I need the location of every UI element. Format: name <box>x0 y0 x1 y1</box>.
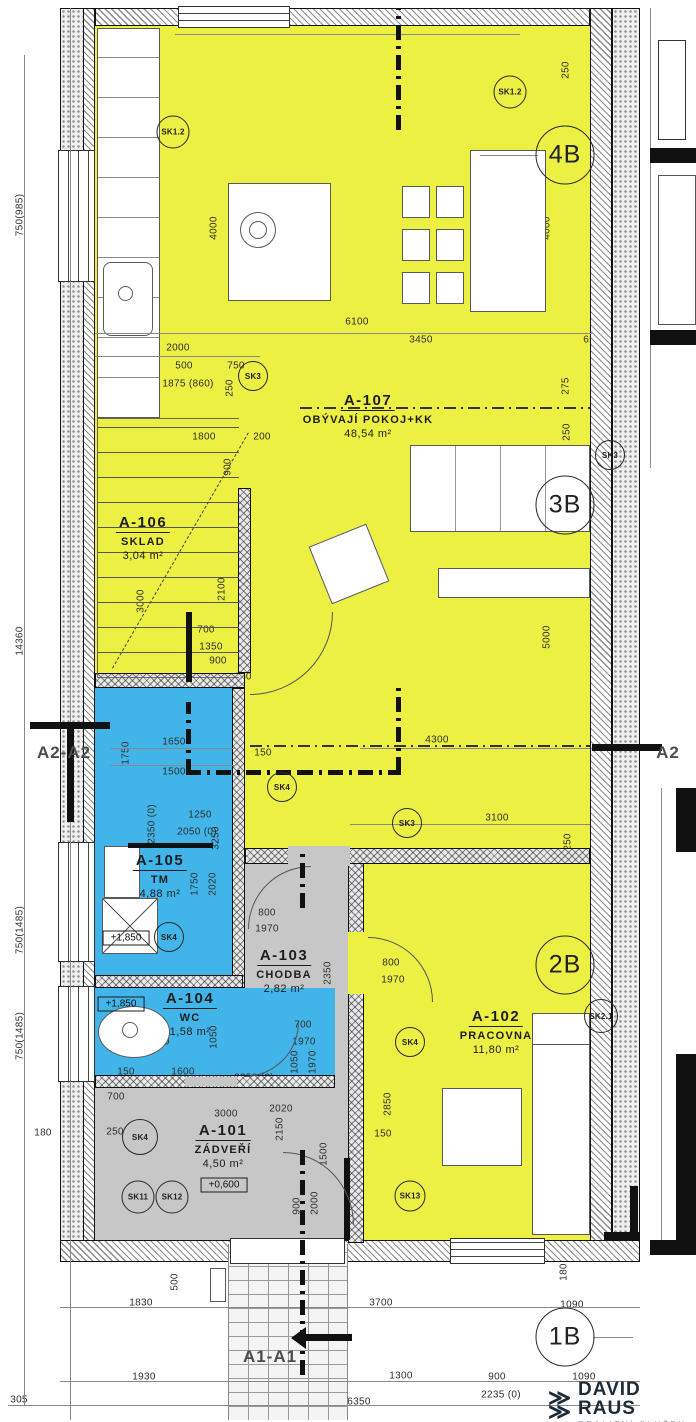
unit-marker-4b: 4B <box>536 126 595 185</box>
room-name: ZÁDVEŘÍ <box>195 1144 252 1156</box>
section-arrow-a2-stem <box>67 722 74 822</box>
door-opening-chodba <box>288 846 350 866</box>
room-label-a-102: A-102PRACOVNA11,80 m² <box>460 1008 533 1056</box>
neighbor-wall-line <box>661 788 662 1240</box>
daybed <box>532 1013 590 1235</box>
dimension-label: 180 <box>34 1128 52 1139</box>
section-arrow-a1-head <box>291 1327 306 1349</box>
room-name: OBÝVAJÍ POKOJ+KK <box>303 414 434 426</box>
marker-sk4: SK4 <box>267 772 297 802</box>
room-area: 4,50 m² <box>195 1158 252 1170</box>
door-opening-pracovna <box>348 932 364 994</box>
pipe-line-v <box>186 702 191 774</box>
room-area: 11,80 m² <box>460 1044 533 1056</box>
dimension-label: 2020 <box>269 1104 292 1115</box>
dimension-label: 2020 <box>208 872 219 895</box>
dim-line <box>360 748 590 749</box>
room-area: 3,04 m² <box>116 550 170 562</box>
dimension-label: 1750 <box>121 741 132 764</box>
section-arrow-a2-right <box>592 744 662 751</box>
section-line-a1-chodba <box>300 848 305 908</box>
room-label-a-105: A-105TM4,88 m² <box>133 852 187 900</box>
platform-edge <box>128 843 213 848</box>
wall-right-inner <box>590 8 612 1262</box>
dimension-label: 250 <box>561 61 572 79</box>
corner-column <box>630 1186 638 1240</box>
room-label-a-106: A-106SKLAD3,04 m² <box>116 514 170 562</box>
dimension-label: 3450 <box>409 335 432 346</box>
dimension-label: 275 <box>561 377 572 395</box>
dining-table <box>470 150 546 312</box>
marker-sk3: SK3 <box>595 440 625 470</box>
dimension-label: 2850 <box>383 1092 394 1115</box>
wall-right-insulation <box>612 8 640 1262</box>
porch-step <box>210 1268 226 1302</box>
room-name: PRACOVNA <box>460 1030 533 1042</box>
neighbor-wall <box>676 1054 696 1242</box>
neighbor-room <box>658 175 696 325</box>
room-code: A-101 <box>196 1122 250 1141</box>
dimension-label: 1650 <box>162 737 185 748</box>
brand-chevron-icon: ≫ ≫ <box>548 1391 571 1418</box>
section-arrow-a1-bar <box>306 1334 352 1341</box>
dim-line <box>24 55 25 1405</box>
neighbor-wall <box>650 148 696 163</box>
storage-door-leaf <box>186 612 192 682</box>
window-left-mid <box>58 842 95 962</box>
dimension-label: 1050 <box>290 1050 301 1073</box>
dimension-label: 1875 (860) <box>162 379 213 390</box>
dimension-label: 2235 (0) <box>481 1390 521 1401</box>
dimension-label: 250 <box>562 423 573 441</box>
room-name: TM <box>133 874 187 886</box>
dining-chair <box>402 229 430 261</box>
dimension-label: 3100 <box>485 813 508 824</box>
dimension-label: 5000 <box>542 625 553 648</box>
section-mark-label: A2 <box>656 743 680 763</box>
marker-sk1.2: SK1.2 <box>157 116 190 149</box>
dimension-label: 1500 <box>162 767 185 778</box>
dining-chair <box>402 272 430 304</box>
neighbor-wall <box>676 788 696 852</box>
room-name: WC <box>163 1012 217 1024</box>
centerline-mid <box>250 745 590 747</box>
dim-line <box>60 1307 640 1308</box>
desk <box>442 1088 522 1166</box>
room-code: A-103 <box>257 947 311 966</box>
dimension-label: 3000 <box>214 1109 237 1120</box>
dimension-label: 1750 <box>190 872 201 895</box>
wall-bottom <box>60 1240 640 1262</box>
room-label-a-103: A-103CHODBA2,82 m² <box>256 947 311 995</box>
entry-door-opening <box>230 1238 345 1264</box>
unit-marker-1b: 1B <box>536 1308 595 1367</box>
dimension-label: 150 <box>254 748 272 759</box>
neighbor-wall <box>650 1240 696 1255</box>
dimension-label: 305 <box>10 1395 28 1406</box>
dim-line <box>175 34 520 35</box>
window-top <box>178 6 290 28</box>
room-area: 1,58 m² <box>163 1026 217 1038</box>
cooktop-inner <box>249 221 267 239</box>
room-area: 2,82 m² <box>256 983 311 995</box>
room-code: A-102 <box>469 1008 523 1027</box>
window-left-low <box>58 986 95 1082</box>
dimension-label: 250 <box>225 379 236 397</box>
dim-line <box>70 8 71 1420</box>
dim-line <box>350 824 590 825</box>
dim-line <box>8 1405 640 1406</box>
neighbor-window <box>658 40 686 140</box>
room-label-a-104: A-104WC1,58 m² <box>163 990 217 1038</box>
kitchen-island <box>228 183 331 301</box>
wall-chodba-east <box>348 863 364 1243</box>
dimension-label: 2350 (0) <box>147 804 158 844</box>
dimension-label: 4000 <box>209 216 220 239</box>
elevation-mark: +1,850 <box>103 931 150 946</box>
neighbor-wall-line <box>650 8 651 468</box>
dimension-label: 150 <box>374 1129 392 1140</box>
door-opening-wc <box>185 1077 237 1086</box>
elevation-mark: +1,850 <box>98 997 145 1012</box>
dining-chair <box>436 272 464 304</box>
marker-sk3: SK3 <box>392 808 422 838</box>
wall-a105-east <box>232 688 245 988</box>
room-name: CHODBA <box>256 969 311 981</box>
window-left-top <box>58 150 95 282</box>
brand-name: DAVID RAUS <box>578 1380 696 1418</box>
dimension-label: 700 <box>107 1092 125 1103</box>
wall-top <box>95 8 590 26</box>
wall-wc-north <box>95 975 243 988</box>
washbasin-drain <box>122 1022 138 1038</box>
marker-sk4: SK4 <box>395 1027 425 1057</box>
brand-logo: ≫ ≫ DAVID RAUS REALITNÍ SLUŽBY <box>548 1380 696 1422</box>
marker-sk11: SK11 <box>122 1181 155 1214</box>
room-area: 48,54 m² <box>303 428 434 440</box>
dim-line <box>110 765 235 766</box>
paver-walkway <box>228 1244 348 1420</box>
dimension-label: 2150 <box>275 1117 286 1140</box>
marker-sk1.2: SK1.2 <box>494 76 527 109</box>
marker-sk2.1: SK2.1 <box>584 999 618 1033</box>
room-code: A-107 <box>341 392 395 411</box>
dining-chair <box>402 186 430 218</box>
brand-text: DAVID RAUS REALITNÍ SLUŽBY <box>578 1380 696 1422</box>
dining-chair <box>436 186 464 218</box>
room-code: A-105 <box>133 852 187 871</box>
kitchen-faucet <box>118 286 133 301</box>
room-code: A-106 <box>116 514 170 533</box>
room-label-a-107: A-107OBÝVAJÍ POKOJ+KK48,54 m² <box>303 392 434 440</box>
dimension-label: 180 <box>559 1263 570 1281</box>
marker-sk4: SK4 <box>122 1119 158 1155</box>
dim-line <box>95 333 592 334</box>
dimension-label: 2000 <box>166 343 189 354</box>
elevation-mark: +0,600 <box>201 1178 248 1193</box>
window-bottom-pracovna <box>450 1238 545 1264</box>
dim-line <box>95 356 260 357</box>
room-name: SKLAD <box>116 536 170 548</box>
leader-line <box>593 1337 633 1338</box>
marker-sk13: SK13 <box>395 1181 426 1212</box>
neighbor-wall <box>650 330 696 345</box>
dimension-label: 4300 <box>425 735 448 746</box>
dimension-label: 1300 <box>389 1371 412 1382</box>
section-line-a1-top <box>396 8 401 130</box>
dimension-label: 1970 <box>308 1050 319 1073</box>
dimension-label: 2350 <box>323 961 334 984</box>
sideboard <box>438 568 590 598</box>
room-code: A-104 <box>163 990 217 1009</box>
chevron-glyph: ≫ <box>548 1405 571 1419</box>
floor-plan: ≫ ≫ DAVID RAUS REALITNÍ SLUŽBY 2501400 (… <box>0 0 696 1422</box>
dimension-label: 1250 <box>188 810 211 821</box>
section-mark-label: A1-A1 <box>243 1347 297 1367</box>
room-label-a-101: A-101ZÁDVEŘÍ4,50 m² <box>195 1122 252 1170</box>
dimension-label: 500 <box>170 1273 181 1291</box>
section-mark-label: A2-A2 <box>37 743 91 763</box>
dimension-label: 200 <box>253 432 271 443</box>
unit-marker-3b: 3B <box>536 476 595 535</box>
kitchen-counter <box>97 28 160 418</box>
dimension-label: 500 <box>175 361 193 372</box>
marker-sk4: SK4 <box>154 922 184 952</box>
dim-line <box>110 748 235 749</box>
washing-machine <box>102 898 158 954</box>
leader-line <box>480 155 538 156</box>
marker-sk3: SK3 <box>238 361 268 391</box>
dining-chair <box>436 229 464 261</box>
marker-sk12: SK12 <box>156 1181 189 1214</box>
dimension-label: 6100 <box>345 317 368 328</box>
unit-marker-2b: 2B <box>536 936 595 995</box>
section-line-a1-mid <box>396 688 401 772</box>
section-line-a1-jog <box>298 770 401 775</box>
room-area: 4,88 m² <box>133 888 187 900</box>
